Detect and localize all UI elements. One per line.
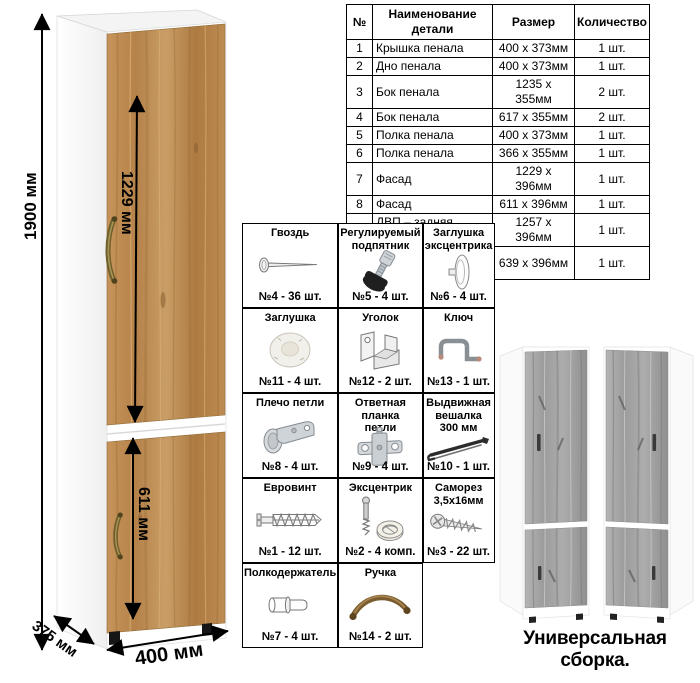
shelf-pin-icon	[264, 580, 316, 631]
cam-lock-icon	[352, 495, 408, 546]
variant-door-handle	[652, 566, 655, 580]
col-header-name: Наименование детали	[373, 5, 493, 40]
hardware-item-qty: №14 - 2 шт.	[349, 631, 412, 643]
table-row: 4Бок пенала617 х 355мм2 шт.	[347, 109, 650, 127]
plug-cap-icon	[268, 325, 312, 376]
hardware-item-pullout-hanger: Выдвижная вешалка 300 мм №10 - 1 шт.	[423, 393, 495, 478]
hardware-item-qty: №13 - 1 шт.	[427, 376, 490, 388]
hardware-item-title: Ключ	[444, 312, 473, 325]
variant-upper-door	[525, 350, 587, 524]
part-name: Полка пенала	[373, 145, 493, 163]
hardware-item-self-tapping-screw: Саморез 3,5х16мм №3 - 22 шт.	[423, 478, 495, 563]
col-header-num: №	[347, 5, 373, 40]
hardware-item-handle: Ручка №14 - 2 шт.	[338, 563, 422, 648]
table-row: 6Полка пенала366 х 355мм1 шт.	[347, 145, 650, 163]
variant-foot	[576, 614, 583, 621]
part-name: Полка пенала	[373, 127, 493, 145]
euro-screw-icon	[255, 495, 325, 546]
part-name: Дно пенала	[373, 58, 493, 76]
variant-door-handle	[537, 434, 541, 451]
table-header-row: № Наименование детали Размер Количество	[347, 5, 650, 40]
hardware-item-shelf-pin: Полкодержатель №7 - 4 шт.	[242, 563, 338, 648]
hardware-item-title: Гвоздь	[271, 227, 309, 240]
part-size: 1235 х 355мм	[493, 76, 575, 109]
col-header-size: Размер	[493, 5, 575, 40]
cabinet-illustration: 1900 мм 1229 мм 611 мм 400 мм 375 мм	[0, 0, 250, 683]
corner-bracket-icon	[355, 325, 405, 376]
variant-upper-door	[606, 350, 668, 524]
table-row: 8Фасад611 х 396мм1 шт.	[347, 196, 650, 214]
variant-door-handle	[538, 566, 541, 580]
hardware-item-title: Уголок	[362, 312, 398, 325]
hinge-arm-icon	[261, 410, 319, 461]
cabinet-foot-left	[109, 631, 120, 645]
hardware-item-euro-screw: Евровинт №1 - 12 шт.	[242, 478, 338, 563]
variant-illustration	[493, 338, 700, 630]
hardware-item-cam-lock: Эксцентрик №2 - 4 комп.	[338, 478, 422, 563]
cabinet-drawing	[57, 10, 226, 650]
part-qty: 1 шт.	[575, 40, 650, 58]
hinge-plate-icon	[355, 435, 405, 461]
cabinet-left-side	[57, 16, 107, 649]
self-tapping-screw-icon	[428, 507, 490, 546]
part-qty: 1 шт.	[575, 196, 650, 214]
universal-assembly-caption: Универсальная сборка.	[488, 628, 700, 672]
table-row: 3Бок пенала1235 х 355мм2 шт.	[347, 76, 650, 109]
part-number: 8	[347, 196, 373, 214]
hardware-item-title: Евровинт	[264, 482, 317, 495]
part-qty: 1 шт.	[575, 247, 650, 280]
part-size: 611 х 396мм	[493, 196, 575, 214]
hardware-item-title: Регулируемый подпятник	[340, 227, 420, 252]
part-number: 3	[347, 76, 373, 109]
part-number: 7	[347, 163, 373, 196]
part-size: 400 х 373мм	[493, 127, 575, 145]
part-size: 1257 х 396мм	[493, 214, 575, 247]
hardware-item-qty: №5 - 4 шт.	[352, 291, 408, 303]
hardware-item-plug-cap: Заглушка №11 - 4 шт.	[242, 308, 338, 393]
hardware-item-qty: №8 - 4 шт.	[262, 461, 318, 473]
hardware-item-title: Выдвижная вешалка 300 мм	[426, 397, 491, 435]
col-header-qty: Количество	[575, 5, 650, 40]
part-name: Фасад	[373, 163, 493, 196]
part-qty: 1 шт.	[575, 58, 650, 76]
part-name: Бок пенала	[373, 76, 493, 109]
pullout-hanger-icon	[425, 435, 493, 461]
part-qty: 1 шт.	[575, 163, 650, 196]
hardware-item-title: Эксцентрик	[349, 482, 412, 495]
hardware-item-qty: №3 - 22 шт.	[427, 546, 490, 558]
lower-door	[107, 432, 225, 633]
cam-cover-icon	[442, 252, 476, 291]
handle-icon	[345, 580, 415, 631]
lower-door-dimension-label: 611 мм	[135, 487, 152, 541]
variant-cabinet-right	[604, 347, 693, 623]
part-qty: 1 шт.	[575, 145, 650, 163]
hardware-item-nail: Гвоздь №4 - 36 шт.	[242, 223, 338, 308]
part-number: 4	[347, 109, 373, 127]
hardware-item-qty: №4 - 36 шт.	[259, 291, 322, 303]
hardware-item-title: Ручка	[365, 567, 396, 580]
part-qty: 1 шт.	[575, 214, 650, 247]
height-dimension-label: 1900 мм	[21, 172, 40, 240]
assembly-sheet: 1900 мм 1229 мм 611 мм 400 мм 375 мм № Н…	[0, 0, 700, 683]
table-row: 5Полка пенала400 х 373мм1 шт.	[347, 127, 650, 145]
hardware-item-qty: №11 - 4 шт.	[259, 376, 321, 388]
part-name: Фасад	[373, 196, 493, 214]
part-size: 400 х 373мм	[493, 40, 575, 58]
hardware-item-hinge-arm: Плечо петли №8 - 4 шт.	[242, 393, 338, 478]
variant-foot	[657, 617, 664, 624]
variant-foot	[610, 614, 617, 621]
hardware-item-corner-bracket: Уголок №12 - 2 шт.	[338, 308, 422, 393]
part-qty: 2 шт.	[575, 76, 650, 109]
hardware-item-title: Саморез 3,5х16мм	[434, 482, 484, 507]
hardware-grid-empty-cell	[423, 563, 495, 648]
variant-foot	[529, 617, 536, 624]
part-name: Бок пенала	[373, 109, 493, 127]
part-size: 617 х 355мм	[493, 109, 575, 127]
hardware-item-adjustable-foot: Регулируемый подпятник №5 - 4 шт.	[338, 223, 422, 308]
part-number: 5	[347, 127, 373, 145]
table-row: 2Дно пенала400 х 373мм1 шт.	[347, 58, 650, 76]
hardware-item-qty: №10 - 1 шт.	[427, 461, 490, 473]
hardware-item-cam-cover: Заглушка эксцентрика №6 - 4 шт.	[423, 223, 495, 308]
hardware-item-title: Плечо петли	[256, 397, 324, 410]
hardware-item-qty: №6 - 4 шт.	[430, 291, 486, 303]
hardware-grid: Гвоздь №4 - 36 шт. Регулируемый подпятни…	[242, 223, 492, 648]
hardware-item-qty: №9 - 4 шт.	[352, 461, 408, 473]
hardware-item-title: Заглушка	[265, 312, 316, 325]
part-size: 1229 х 396мм	[493, 163, 575, 196]
part-name: Крышка пенала	[373, 40, 493, 58]
part-size: 366 х 355мм	[493, 145, 575, 163]
hardware-item-qty: №2 - 4 комп.	[345, 546, 415, 558]
adjustable-foot-icon	[356, 252, 404, 291]
part-size: 639 х 396мм	[493, 247, 575, 280]
variant-door-handle	[653, 434, 657, 451]
part-size: 400 х 373мм	[493, 58, 575, 76]
part-qty: 2 шт.	[575, 109, 650, 127]
part-number: 6	[347, 145, 373, 163]
hardware-item-title: Полкодержатель	[244, 567, 336, 580]
part-number: 2	[347, 58, 373, 76]
hardware-item-qty: №12 - 2 шт.	[349, 376, 412, 388]
hardware-item-title: Заглушка эксцентрика	[425, 227, 493, 252]
table-row: 1Крышка пенала400 х 373мм1 шт.	[347, 40, 650, 58]
hardware-item-qty: №7 - 4 шт.	[262, 631, 318, 643]
hardware-item-hinge-plate: Ответная планка петли №9 - 4 шт.	[338, 393, 422, 478]
upper-door-dimension-label: 1229 мм	[118, 171, 135, 235]
hardware-item-hex-key: Ключ №13 - 1 шт.	[423, 308, 495, 393]
hardware-item-qty: №1 - 12 шт.	[259, 546, 322, 558]
part-qty: 1 шт.	[575, 127, 650, 145]
hex-key-icon	[433, 325, 485, 376]
nail-icon	[257, 240, 323, 291]
part-number: 1	[347, 40, 373, 58]
table-row: 7Фасад1229 х 396мм1 шт.	[347, 163, 650, 196]
